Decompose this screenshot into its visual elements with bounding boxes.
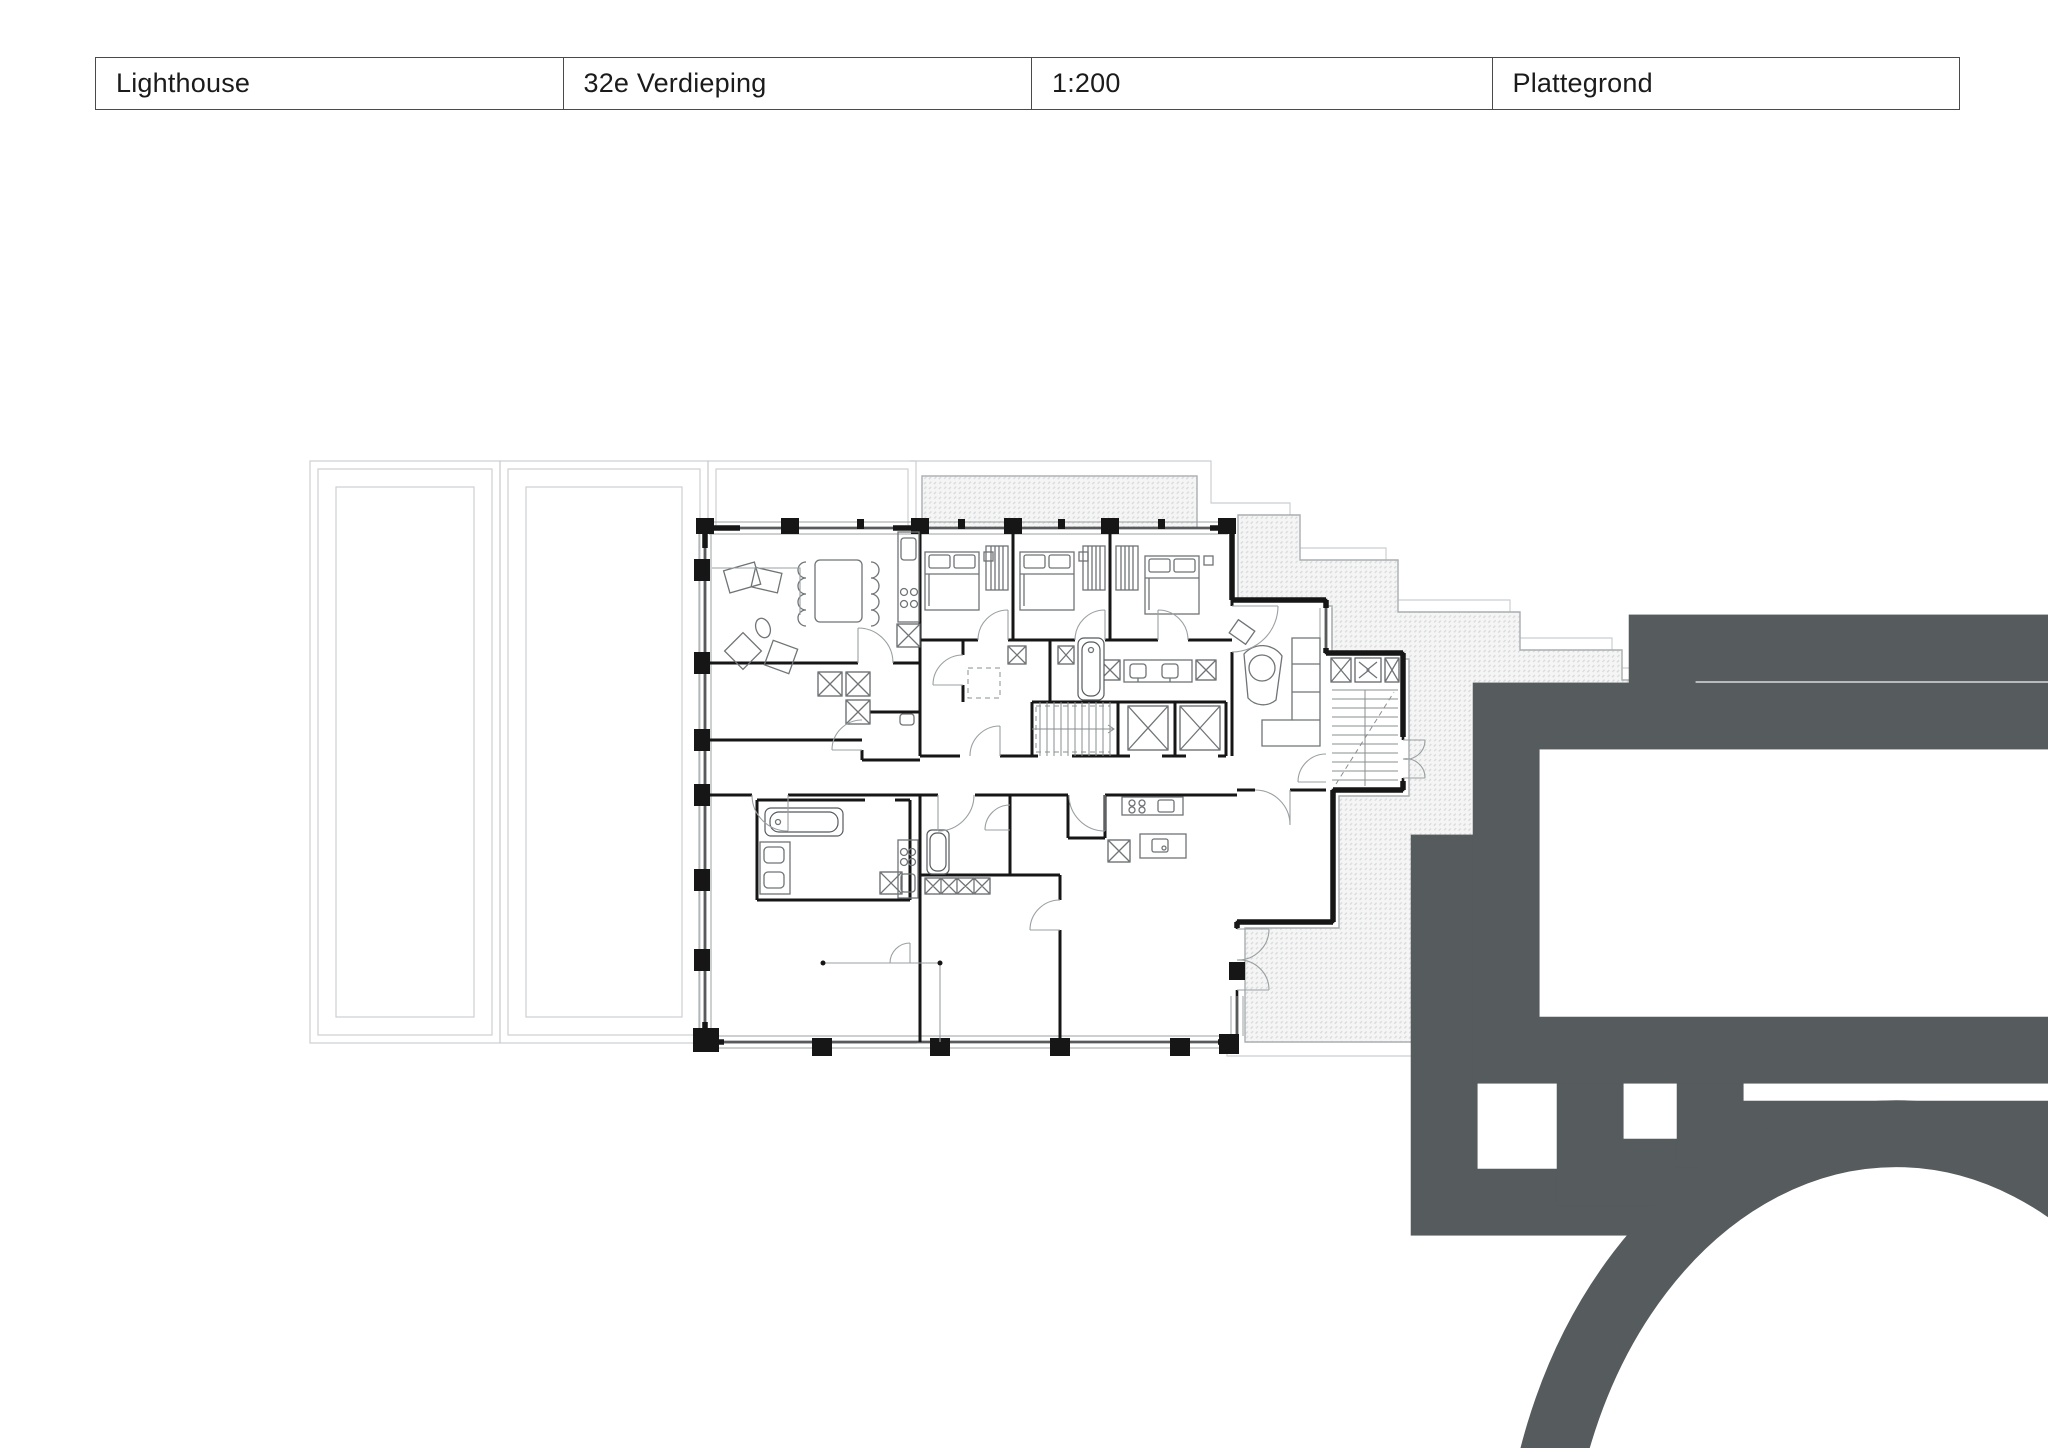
drawing-sheet: Lighthouse 32e Verdieping 1:200 Plattegr… (0, 0, 2048, 1448)
bathtub-1 (765, 808, 843, 836)
elevator-2 (1180, 706, 1220, 750)
bathtub-3 (927, 830, 949, 874)
ghost-floor-outline-2 (500, 461, 708, 1043)
floor-plan-canvas (0, 0, 2048, 1448)
bathtub-2 (1078, 638, 1104, 700)
elevator-1 (1128, 706, 1168, 750)
ghost-floor-outline-1 (310, 461, 500, 1043)
